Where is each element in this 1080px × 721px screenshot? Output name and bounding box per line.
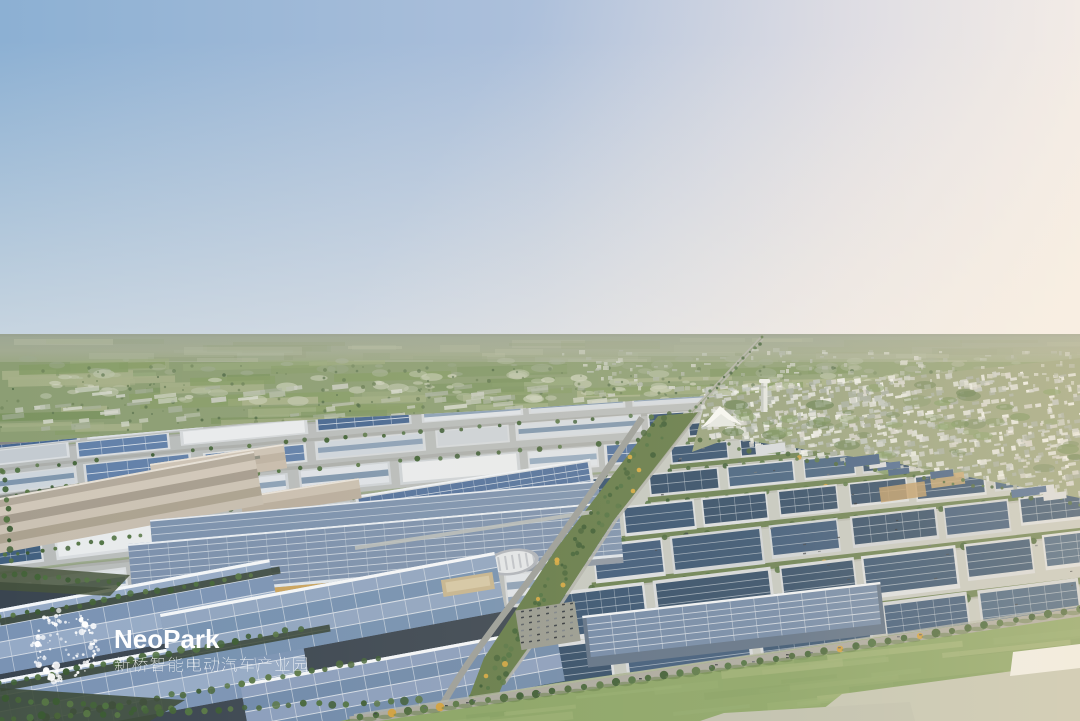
- svg-text:NeoPark: NeoPark: [114, 624, 220, 654]
